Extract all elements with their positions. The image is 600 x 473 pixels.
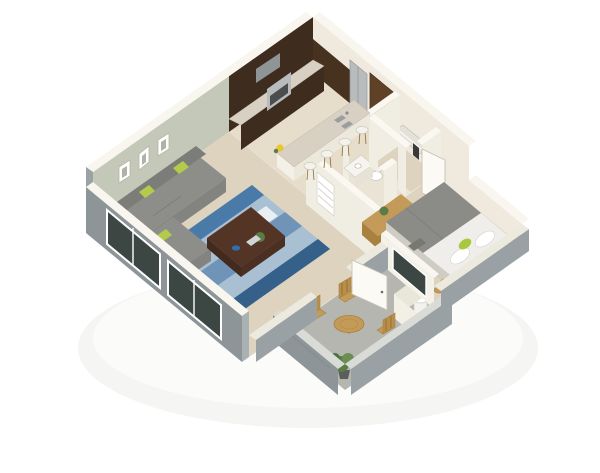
isometric-scene: [0, 0, 600, 473]
sw-wall-endcap: [242, 311, 249, 362]
vanity-basin: [355, 164, 361, 168]
door-knob: [381, 291, 384, 294]
floor-plan-render: [0, 0, 600, 473]
faucet: [345, 111, 348, 114]
wall-c1b-face: [398, 142, 406, 196]
blue-bowl: [232, 245, 240, 250]
wall-c1a-face: [369, 118, 378, 173]
flower-leaves: [274, 149, 278, 153]
dresser-plant: [380, 207, 389, 216]
patio-table-top: [334, 316, 364, 333]
